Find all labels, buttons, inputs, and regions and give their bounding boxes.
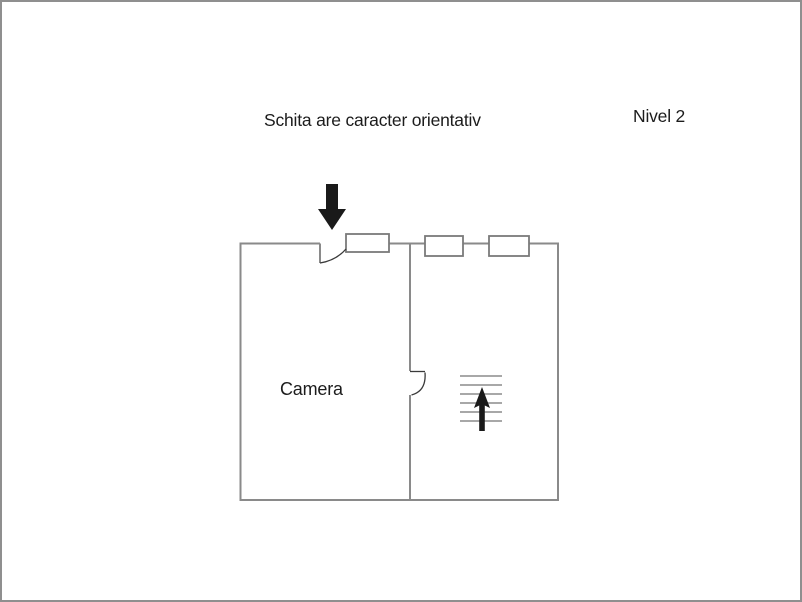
outer-wall [241, 244, 559, 501]
floorplan-page: Schita are caracter orientativ Nivel 2 C… [0, 0, 802, 602]
entrance-door-arc [320, 249, 346, 263]
walls [240, 244, 560, 501]
window-2 [425, 236, 463, 256]
interior-door-arc [412, 373, 426, 396]
window-1 [346, 234, 389, 252]
windows [346, 234, 529, 256]
entrance-arrow-down-icon [318, 184, 346, 230]
floorplan-drawing [2, 2, 802, 602]
window-3 [489, 236, 529, 256]
